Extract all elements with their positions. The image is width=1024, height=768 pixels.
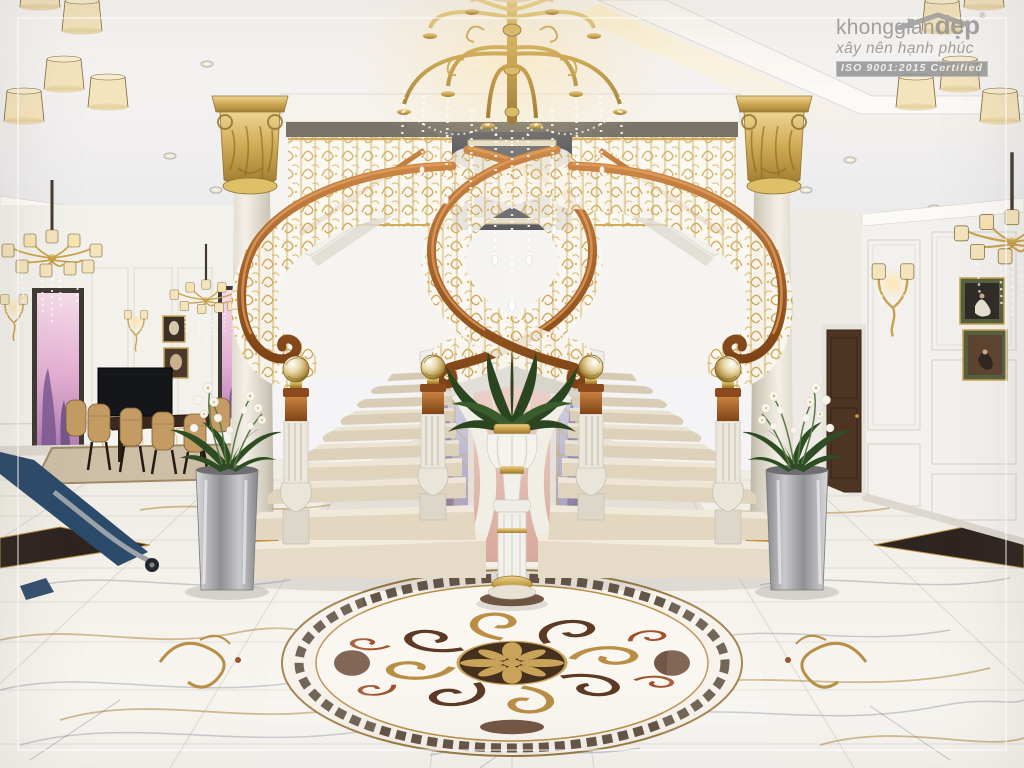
wood-door: [822, 324, 866, 496]
watermark-tagline: xây nên hạnh phúc: [836, 41, 1008, 57]
interior-render: khonggianđẹp® xây nên hạnh phúc ISO 9001…: [0, 0, 1024, 768]
watermark-logo: khonggianđẹp® xây nên hạnh phúc ISO 9001…: [836, 12, 1008, 77]
left-wall-painting: [163, 316, 185, 342]
door-handle: [855, 414, 859, 418]
scene-render: [0, 0, 1024, 768]
right-painting-bottom: [963, 330, 1007, 380]
registered-mark: ®: [979, 11, 985, 20]
logo-roof-icon: [894, 12, 972, 30]
watermark-certification: ISO 9001:2015 Certified: [836, 61, 988, 77]
